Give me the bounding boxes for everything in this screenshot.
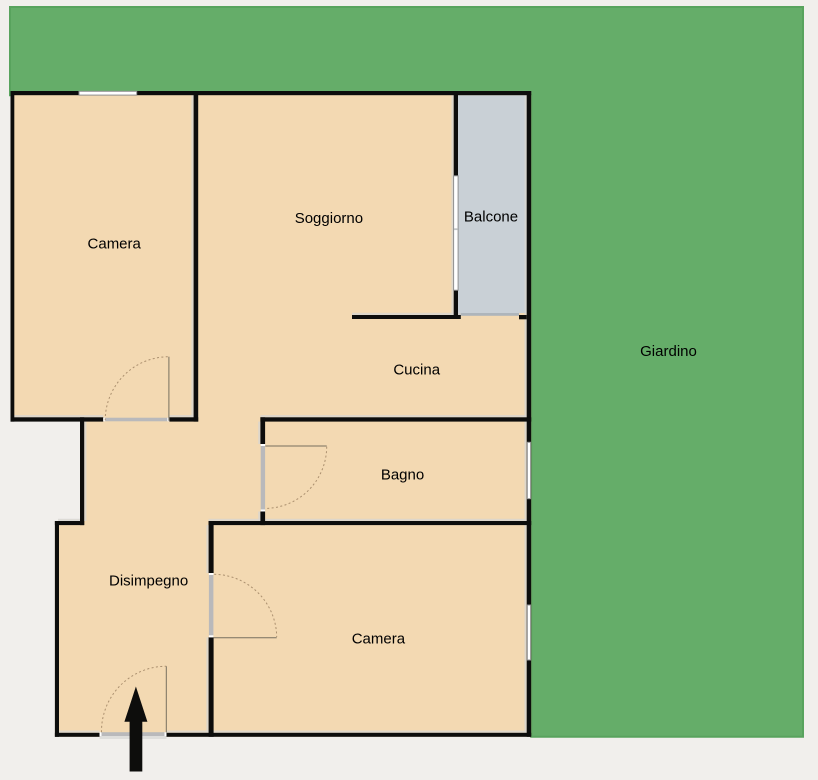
svg-text:Camera: Camera <box>88 235 142 252</box>
svg-text:Balcone: Balcone <box>464 209 518 226</box>
svg-text:Soggiorno: Soggiorno <box>295 210 363 227</box>
svg-text:Giardino: Giardino <box>640 343 697 360</box>
svg-text:Camera: Camera <box>352 630 406 647</box>
svg-text:Cucina: Cucina <box>393 361 440 378</box>
svg-text:Disimpegno: Disimpegno <box>109 573 188 590</box>
svg-text:Bagno: Bagno <box>381 467 424 484</box>
